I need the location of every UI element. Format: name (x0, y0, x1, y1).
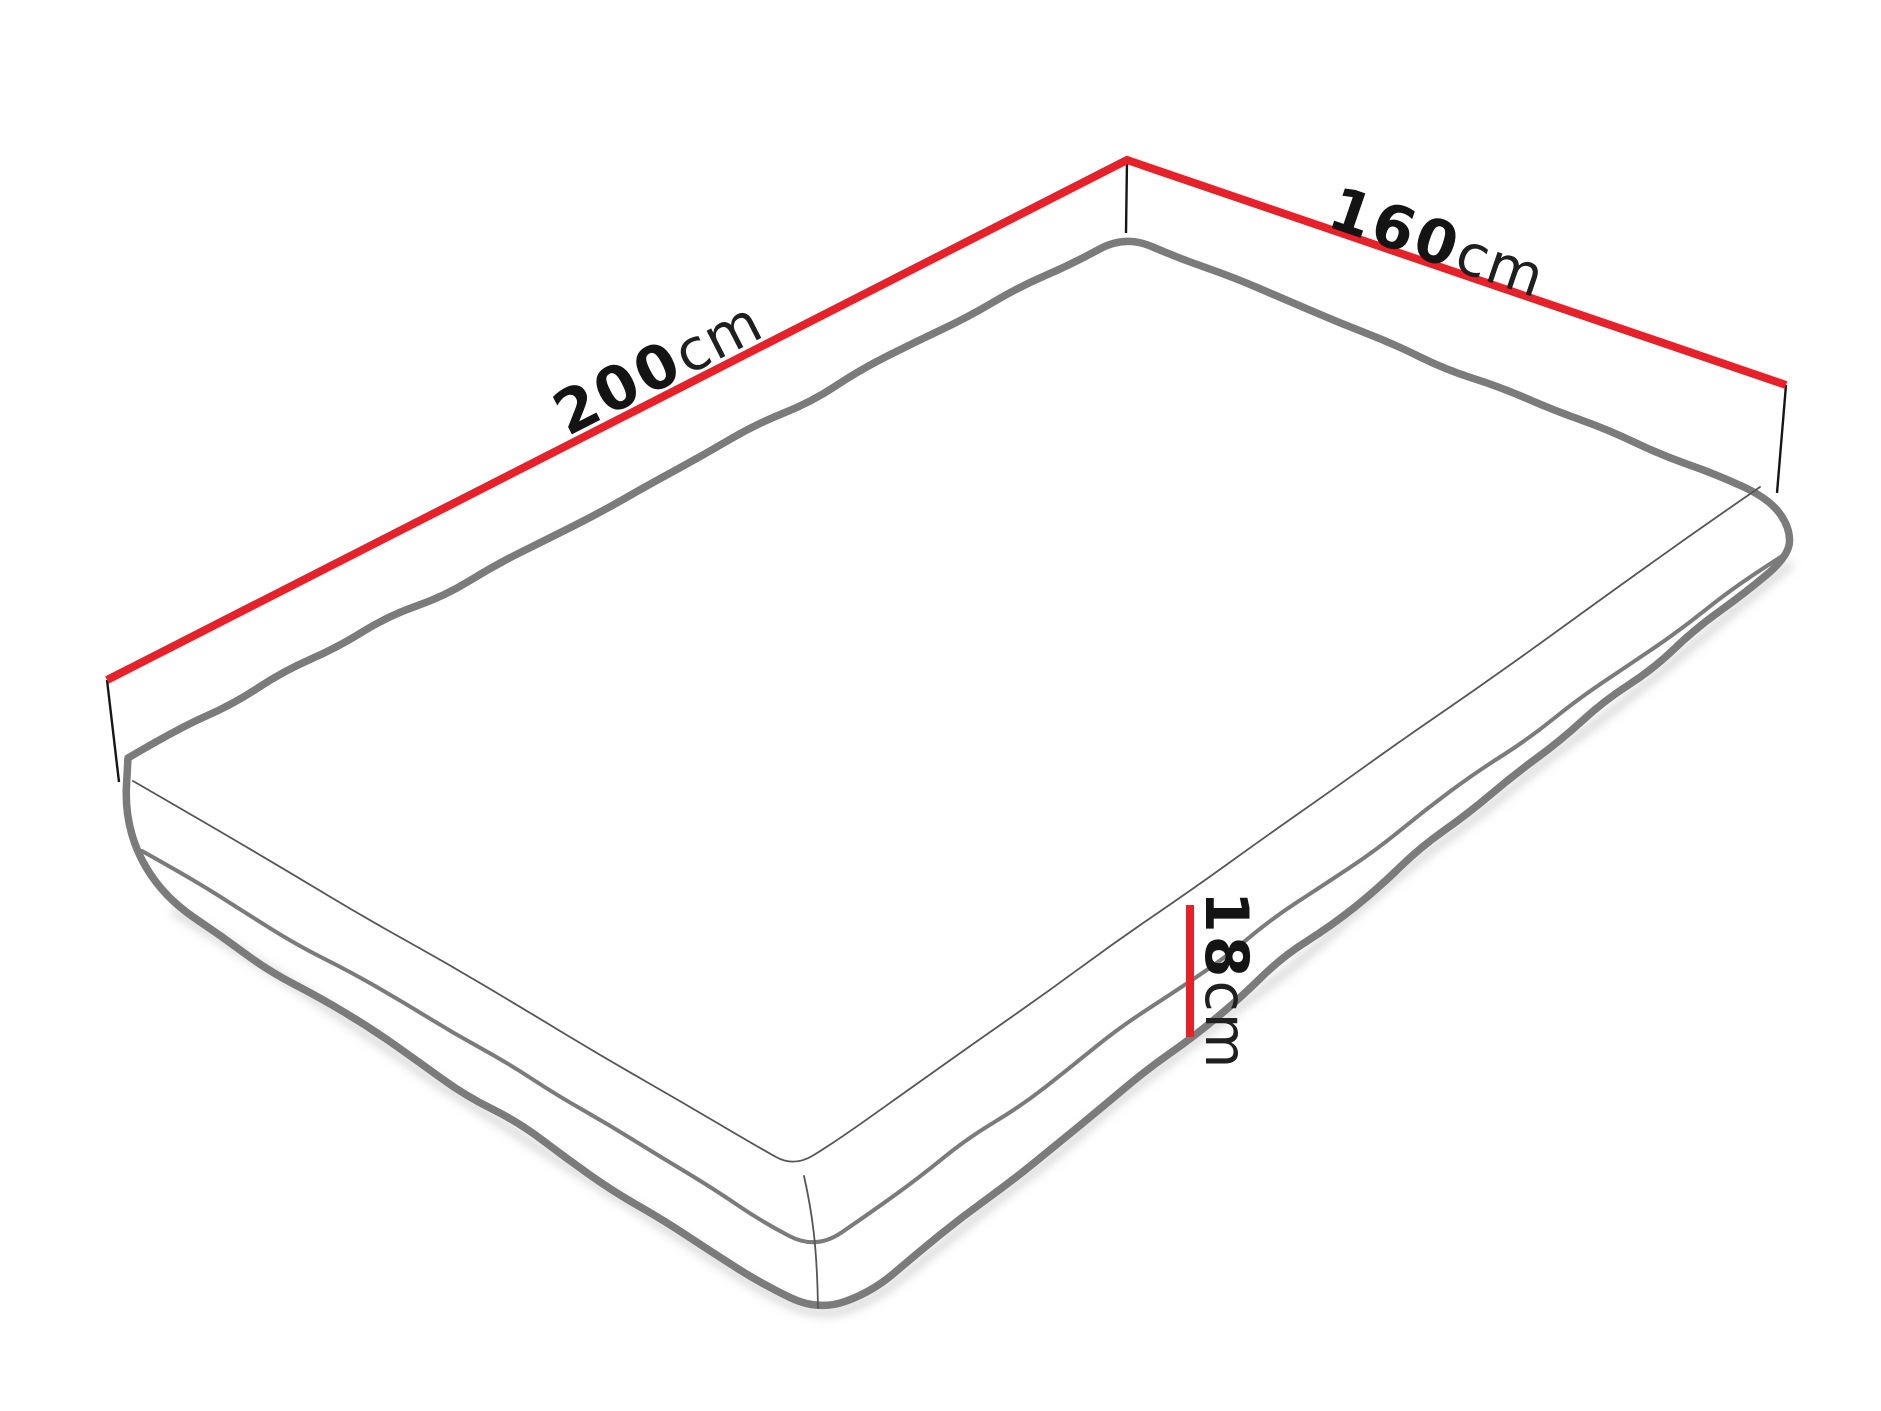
height-unit: cm (1192, 981, 1258, 1070)
height-label: 18cm (1196, 891, 1256, 1069)
connector-line-top (1126, 160, 1127, 233)
mattress-side-seam (142, 556, 1782, 1242)
connector-line-right (1777, 385, 1786, 493)
height-value: 18 (1191, 891, 1261, 981)
mattress-dimension-diagram: 200cm 160cm 18cm (0, 0, 1881, 1411)
mattress-svg (0, 0, 1881, 1411)
length-width-dimension-line (107, 160, 1786, 680)
mattress-top-seam (133, 487, 1760, 1162)
connector-line-left (107, 680, 119, 782)
